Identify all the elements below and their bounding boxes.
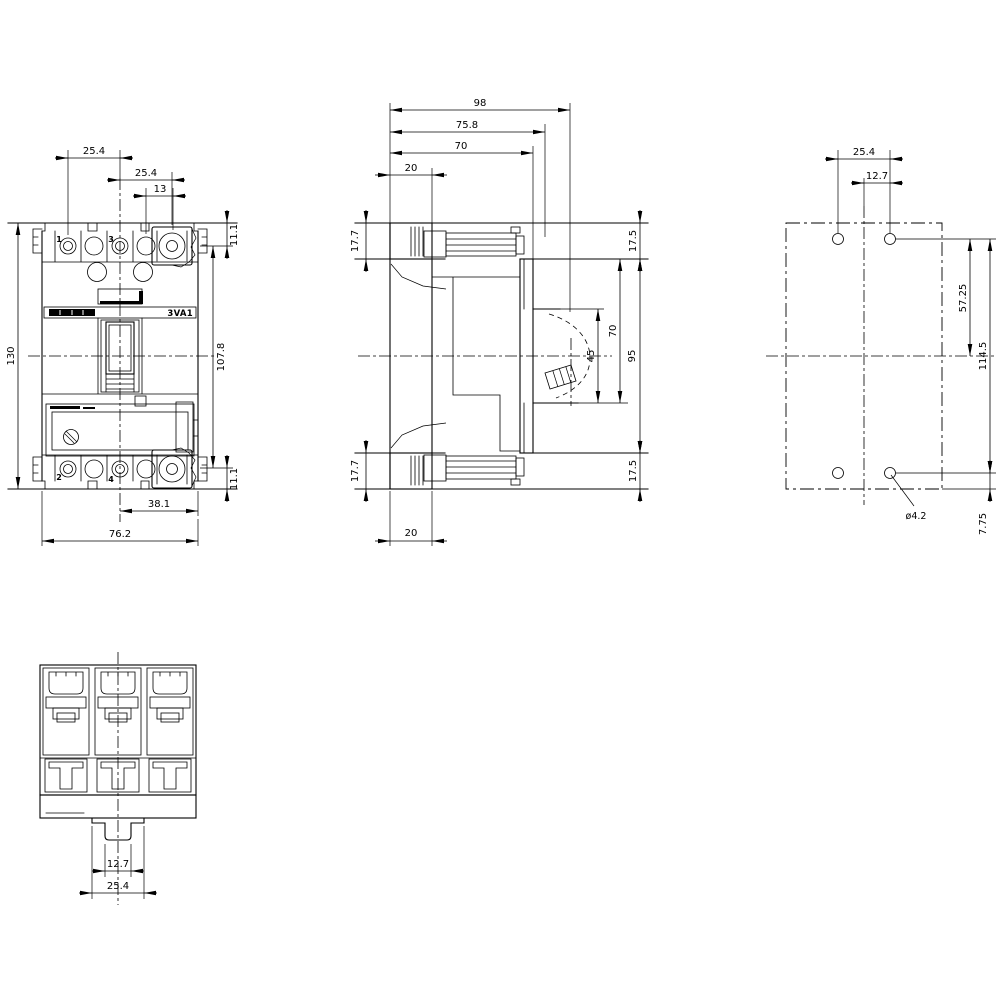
mounting-ear [198,457,207,481]
bottom-view: 12.7 25.4 [40,652,196,905]
terminal-2-label: 2 [56,473,62,482]
dim-hole-to-center: 57.25 [958,284,969,313]
dim-depth-total: 98 [474,98,487,109]
dim-depth-escutcheon: 75.8 [456,120,478,131]
dim-height: 130 [6,346,17,365]
terminal-1-label: 1 [56,235,62,244]
centerlines [28,178,218,522]
dim-half-pitch: 12.7 [866,171,888,182]
dim-bottom-clearance: 17.5 [628,460,639,482]
front-view: 1 3 3VA1 2 [6,146,240,546]
dim-hole-pitch-y: 114.5 [978,342,989,371]
dim-width: 76.2 [109,529,131,540]
mounting-ear [33,457,42,481]
rating-text-smudge [83,407,95,409]
terminal-4-label: 4 [108,475,114,484]
dim-pitch-1-3: 25.4 [83,146,105,157]
hole-diameter-leader [891,475,914,506]
dim-clip-outer-width: 25.4 [107,881,129,892]
accessory-knockout [134,263,153,282]
series-label: 3VA1 [167,309,193,319]
pole-cavity [43,668,89,792]
accessory-cover-tab [176,402,198,452]
dim-top-terminal-offset: 11.1 [229,224,240,246]
dim-span-95: 95 [627,350,638,363]
pole-cavity [147,668,193,792]
dimension-drawing: 1 3 3VA1 2 [0,0,1000,1000]
side-view: 98 75.8 70 20 17.7 17.7 20 17.5 95 70 45… [350,98,648,546]
dim-bottom-terminal-height: 17.7 [350,460,361,482]
dim-depth-cover: 70 [455,141,468,152]
top-connector-bar [446,233,516,256]
trip-test-button [135,396,146,406]
mounting-hole [833,468,844,479]
rating-text-smudge [50,406,80,409]
dim-top-terminal-depth: 20 [405,163,418,174]
dim-bottom-edge-offset: 7.75 [978,513,989,535]
mounting-hole [885,468,896,479]
dim-top-clearance: 17.5 [628,230,639,252]
drilling-plan-view: 25.4 12.7 57.25 114.5 7.75 ø4.2 [766,147,996,535]
dim-hole-pitch-x: 25.4 [853,147,875,158]
dim-handle-window-45: 45 [586,350,597,363]
bottom-connector-bar [446,456,516,479]
centerlines [766,206,996,505]
mounting-ear [33,229,42,253]
mounting-hole [885,234,896,245]
terminal-1 [60,238,76,254]
terminal-2 [60,461,76,477]
dim-handle-span-70: 70 [608,325,619,338]
technical-drawing-page: 1 3 3VA1 2 [0,0,1000,1000]
dim-terminal-span: 107.8 [216,343,227,372]
dim-clip-inner-width: 12.7 [107,859,129,870]
dim-bottom-terminal-offset: 11.1 [229,468,240,490]
dim-lug-opening: 13 [154,184,167,195]
adjustment-screw [64,430,79,445]
terminal-3-label: 3 [108,235,114,244]
dim-bottom-terminal-depth: 20 [405,528,418,539]
mounting-ear [198,229,207,253]
dim-pitch-3-5: 25.4 [135,168,157,179]
accessory-knockout [88,263,107,282]
mounting-hole [833,234,844,245]
dim-hole-diameter: ø4.2 [906,511,927,522]
dim-top-terminal-height: 17.7 [350,230,361,252]
dim-center-to-edge: 38.1 [148,499,170,510]
